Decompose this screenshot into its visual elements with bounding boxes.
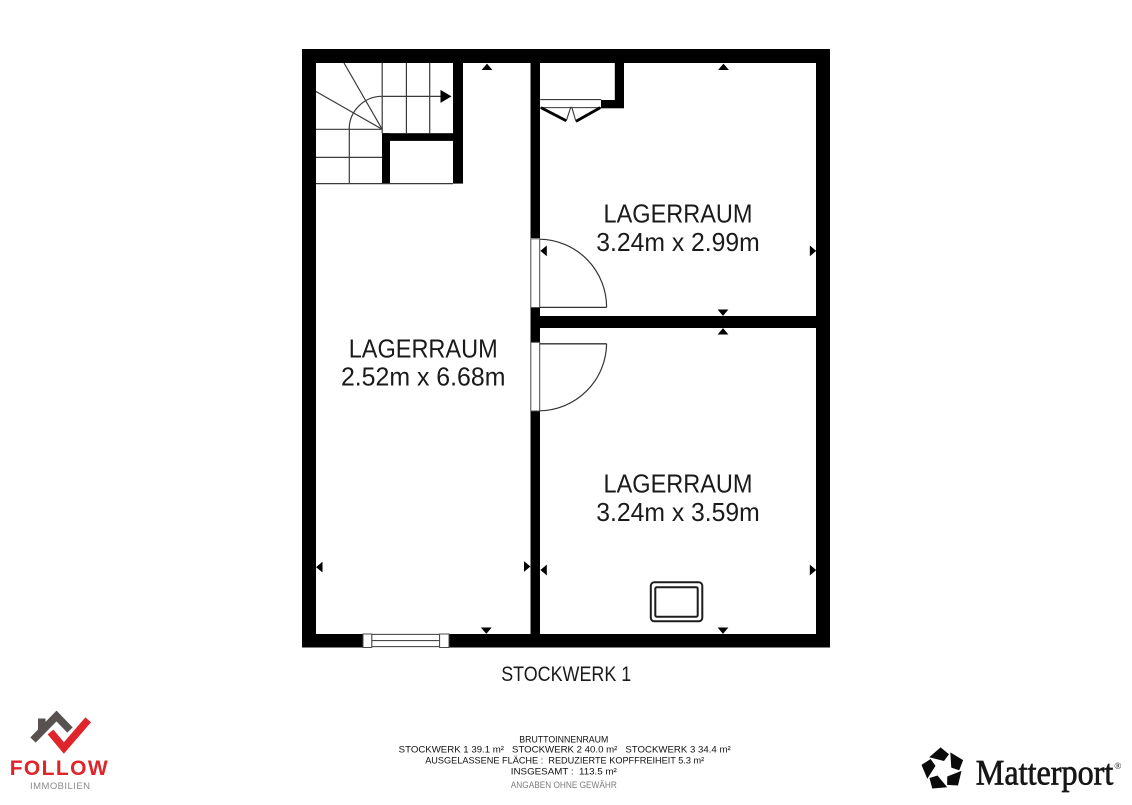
svg-text:FOLLOW: FOLLOW <box>10 757 108 780</box>
svg-text:STOCKWERK 1 39.1 m² STOCKWER: STOCKWERK 1 39.1 m² STOCKWERK 2 40.0 m² … <box>399 745 731 756</box>
svg-text:Matterport: Matterport <box>976 753 1114 793</box>
svg-text:INSGESAMT : 113.5 m²: INSGESAMT : 113.5 m² <box>511 766 617 777</box>
svg-text:LAGERRAUM: LAGERRAUM <box>604 199 753 229</box>
svg-text:®: ® <box>1114 761 1121 772</box>
svg-text:IMMOBILIEN: IMMOBILIEN <box>30 781 90 792</box>
svg-text:3.24m x 2.99m: 3.24m x 2.99m <box>596 227 760 257</box>
svg-text:STOCKWERK 1: STOCKWERK 1 <box>501 662 631 686</box>
svg-text:AUSGELASSENE FLÄCHE : REDUZIE: AUSGELASSENE FLÄCHE : REDUZIERTE KOPFFRE… <box>425 756 704 767</box>
svg-text:ANGABEN OHNE GEWÄHR: ANGABEN OHNE GEWÄHR <box>511 780 617 791</box>
svg-text:LAGERRAUM: LAGERRAUM <box>604 469 753 499</box>
svg-text:3.24m x 3.59m: 3.24m x 3.59m <box>596 497 760 527</box>
svg-text:2.52m x 6.68m: 2.52m x 6.68m <box>341 361 506 391</box>
svg-text:LAGERRAUM: LAGERRAUM <box>349 334 498 364</box>
